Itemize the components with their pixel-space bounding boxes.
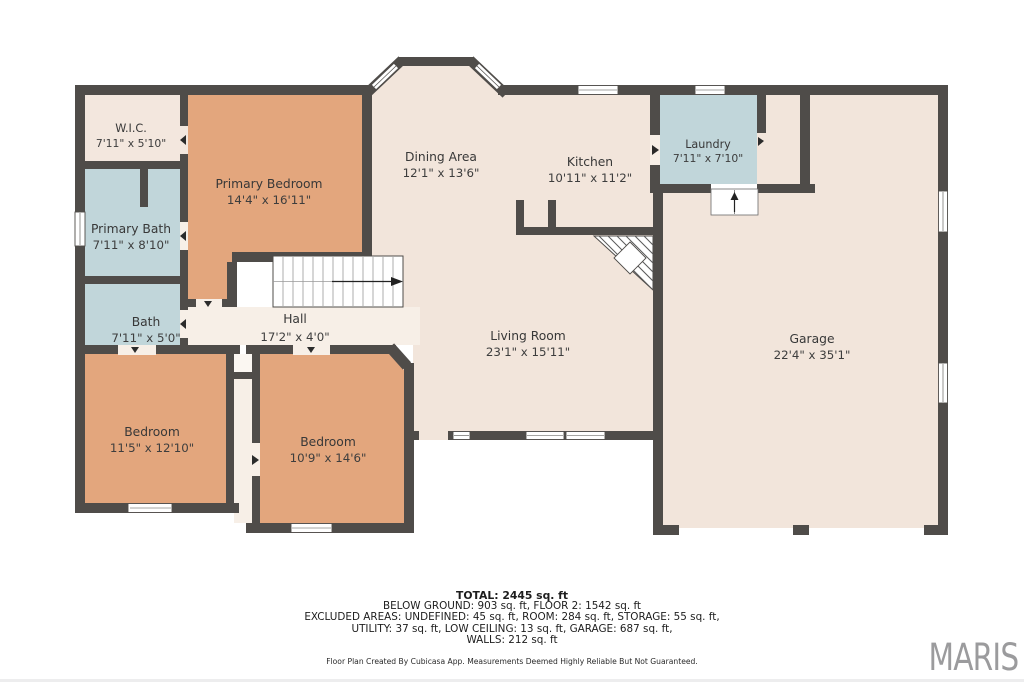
laundry-label: Laundry <box>685 138 731 151</box>
hall-label: Hall <box>283 312 307 326</box>
primary-bath-label: Primary Bath <box>91 222 171 236</box>
dining-dims: 12'1" x 13'6" <box>403 166 480 180</box>
wic-label: W.I.C. <box>115 122 147 135</box>
bedroom-right-label: Bedroom <box>300 435 356 449</box>
bedroom-left-label: Bedroom <box>124 425 180 439</box>
closet-strip-fill <box>234 354 252 523</box>
garage-label: Garage <box>789 332 834 346</box>
primary-bath-dims: 7'11" x 8'10" <box>93 238 170 252</box>
summary-line-3: EXCLUDED AREAS: UNDEFINED: 45 sq. ft, RO… <box>0 612 1024 623</box>
summary-line-5: WALLS: 212 sq. ft <box>0 635 1024 646</box>
kitchen-dims: 10'11" x 11'2" <box>548 171 632 185</box>
maris-logo: MARIS <box>928 636 1018 679</box>
laundry-closet-fill <box>766 95 800 184</box>
garage-dims: 22'4" x 35'1" <box>774 348 851 362</box>
room-fills <box>85 62 938 528</box>
floor-plan: W.I.C. 7'11" x 5'10" Primary Bath 7'11" … <box>0 0 1024 682</box>
garage-upper-fill <box>810 95 938 190</box>
living-label: Living Room <box>490 329 566 343</box>
primary-bedroom-label: Primary Bedroom <box>215 177 322 191</box>
floor-plan-page: W.I.C. 7'11" x 5'10" Primary Bath 7'11" … <box>0 0 1024 682</box>
bath-label: Bath <box>132 315 161 329</box>
dining-label: Dining Area <box>405 150 477 164</box>
area-summary: TOTAL: 2445 sq. ft BELOW GROUND: 903 sq.… <box>0 590 1024 646</box>
disclaimer-text: Floor Plan Created By Cubicasa App. Meas… <box>0 657 1024 666</box>
hall-staircase <box>237 256 403 307</box>
bath-dims: 7'11" x 5'0" <box>111 331 180 345</box>
primary-bedroom-dims: 14'4" x 16'11" <box>227 193 311 207</box>
kitchen-label: Kitchen <box>567 155 613 169</box>
bedroom-right-dims: 10'9" x 14'6" <box>290 451 367 465</box>
bedroom-left-dims: 11'5" x 12'10" <box>110 441 194 455</box>
garage-entry-steps <box>711 189 758 215</box>
living-dims: 23'1" x 15'11" <box>486 345 570 359</box>
laundry-dims: 7'11" x 7'10" <box>673 152 743 165</box>
hall-dims: 17'2" x 4'0" <box>260 330 329 344</box>
closet-fill <box>234 354 252 372</box>
stair-landing <box>237 262 273 307</box>
wic-dims: 7'11" x 5'10" <box>96 137 166 150</box>
